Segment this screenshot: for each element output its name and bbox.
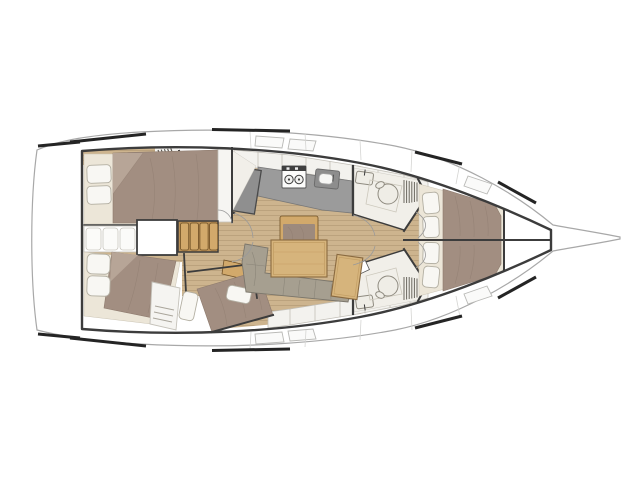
- stove-icon: [282, 166, 306, 188]
- wardrobe: [218, 149, 232, 222]
- chart-table: [331, 254, 363, 299]
- companionway-steps: [178, 221, 218, 252]
- step: [190, 223, 198, 250]
- step: [210, 223, 218, 250]
- pillow: [87, 165, 112, 184]
- pillow: [422, 266, 440, 289]
- locker: [103, 228, 118, 250]
- galley-sink-icon: [314, 169, 340, 189]
- locker: [86, 228, 101, 250]
- locker: [120, 228, 135, 250]
- salon-table: [271, 240, 327, 277]
- step: [181, 223, 189, 250]
- engine-hatch: [137, 220, 177, 255]
- pillow: [422, 192, 440, 215]
- step: [200, 223, 208, 250]
- pillow: [87, 186, 112, 205]
- pillow: [87, 276, 111, 297]
- pillow: [87, 254, 111, 275]
- yacht-floorplan: [0, 0, 640, 480]
- aft-port-cabin: [82, 148, 232, 225]
- floorplan-svg: [0, 0, 640, 480]
